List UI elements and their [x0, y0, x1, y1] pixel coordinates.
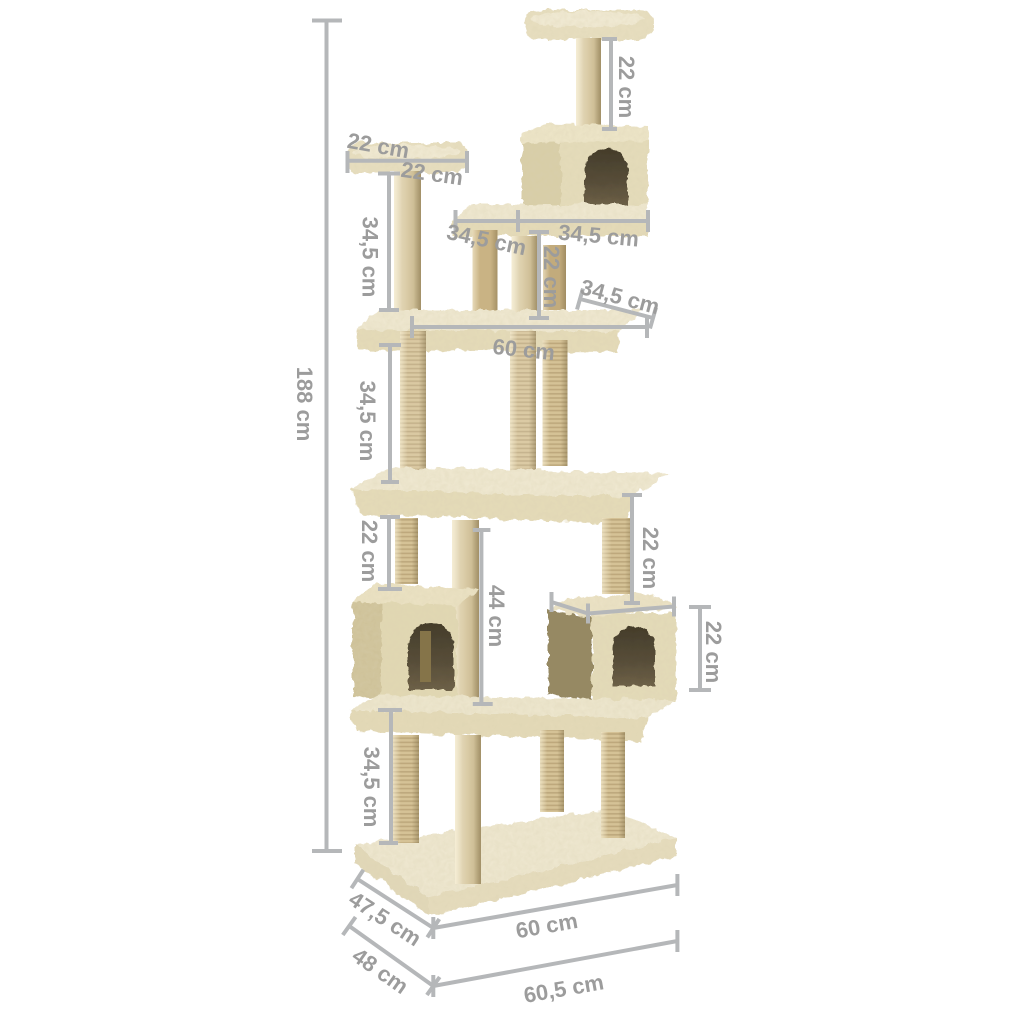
- svg-text:44 cm: 44 cm: [484, 585, 509, 647]
- svg-text:34,5 cm: 34,5 cm: [358, 217, 383, 298]
- svg-text:22 cm: 22 cm: [614, 56, 639, 118]
- svg-text:60 cm: 60 cm: [491, 334, 556, 365]
- svg-text:22 cm: 22 cm: [539, 246, 564, 308]
- svg-text:34,5 cm: 34,5 cm: [355, 381, 380, 462]
- svg-text:22 cm: 22 cm: [638, 527, 663, 589]
- svg-text:22 cm: 22 cm: [357, 520, 382, 582]
- svg-text:34,5 cm: 34,5 cm: [359, 747, 384, 828]
- svg-text:60,5 cm: 60,5 cm: [522, 969, 606, 1008]
- svg-text:48 cm: 48 cm: [348, 943, 413, 999]
- svg-text:22 cm: 22 cm: [701, 621, 726, 683]
- svg-text:188 cm: 188 cm: [292, 367, 317, 442]
